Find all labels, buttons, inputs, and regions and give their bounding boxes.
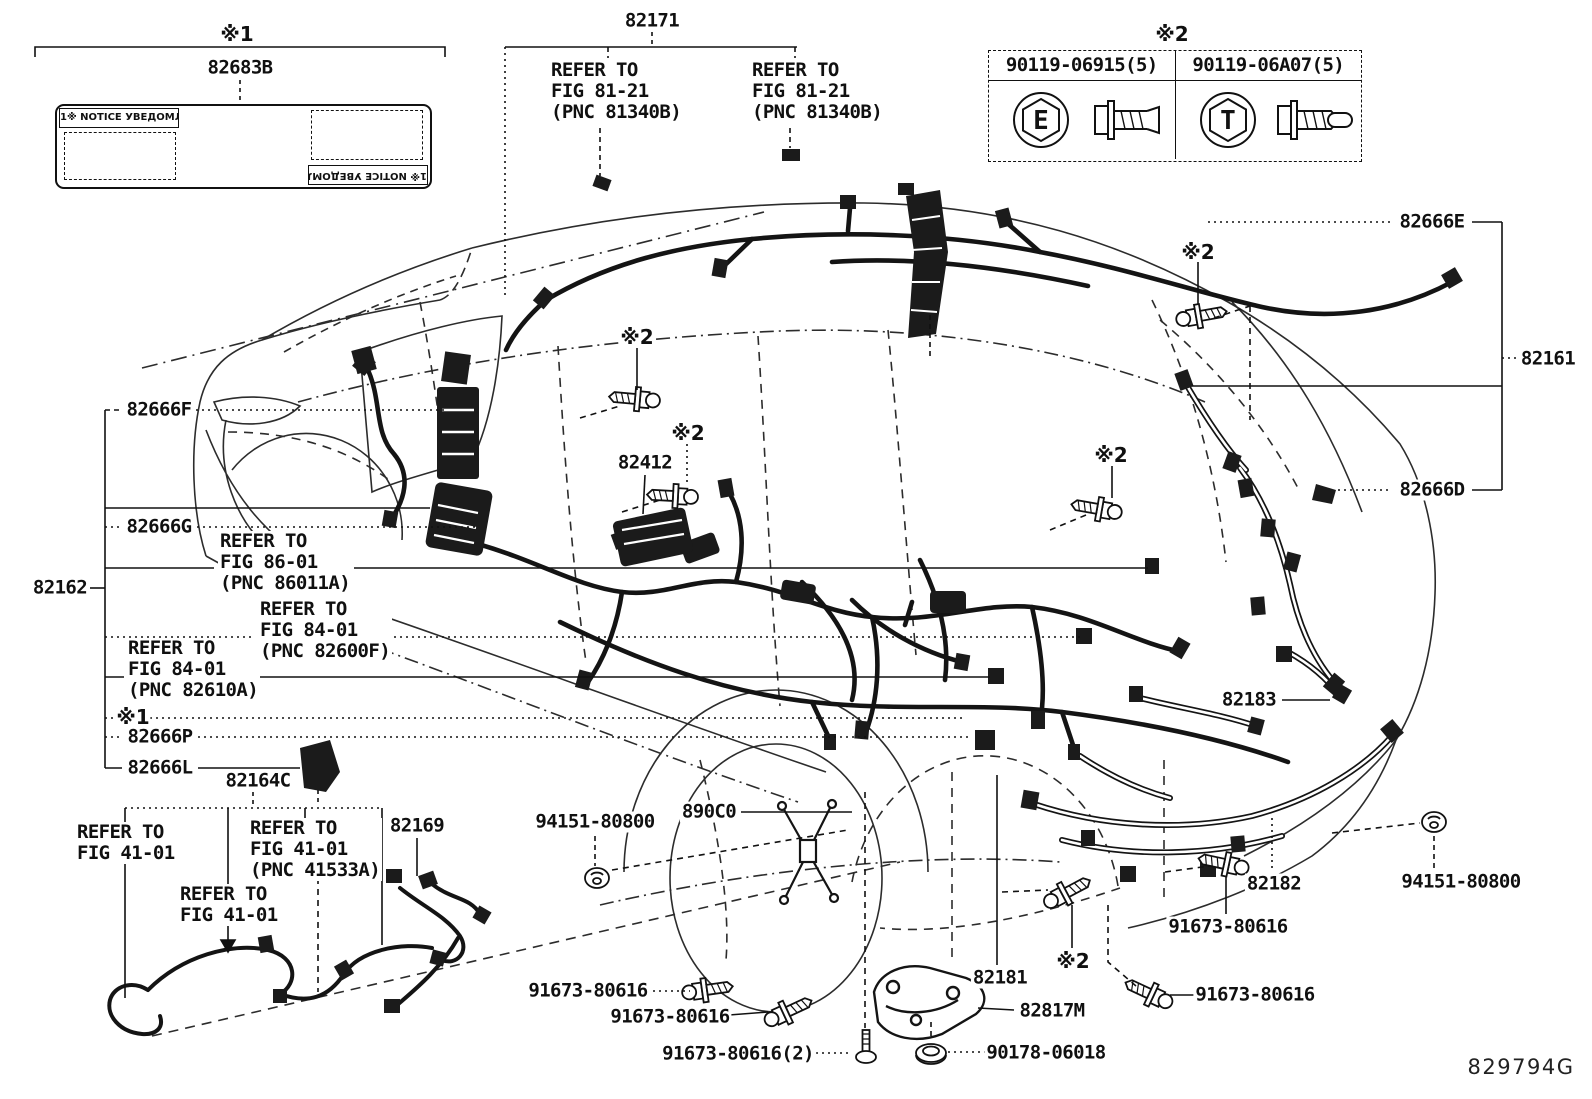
door-harness-block [425, 481, 494, 556]
bolt-icon [646, 483, 698, 510]
label-82683b: 82683B [205, 58, 274, 79]
label-82161: 82161 [1519, 349, 1577, 370]
ref-fig41-01-b: REFER TO FIG 41-01 [178, 884, 280, 926]
label-82666p: 82666P [125, 727, 194, 748]
label-94151-80800-left: 94151-80800 [533, 812, 656, 833]
notice-label-plate: 1※ NOTICE УВЕДОМЛЕНИЕ 1※ NOTICE УВЕДОМЛЕ… [55, 104, 432, 189]
fastener-part-number-1: 90119-06915(5) [989, 51, 1176, 80]
mark-x2-bumper: ※2 [1055, 951, 1090, 971]
protector-part-82666l [300, 740, 340, 792]
dash-harness [368, 370, 405, 518]
bolt-face-letter: T [1220, 106, 1236, 136]
label-82666e: 82666E [1397, 212, 1466, 233]
label-82666l: 82666L [125, 758, 194, 779]
bolt-face-letter: E [1033, 106, 1049, 136]
label-82817m: 82817M [1017, 1001, 1086, 1022]
label-82666f: 82666F [124, 400, 193, 421]
notice-header-mirrored: 1※ NOTICE УВЕДОМЛЕНИЕ [308, 165, 428, 185]
label-82183: 82183 [1220, 690, 1278, 711]
mark-x2-table: ※2 [1154, 24, 1189, 44]
fastener-part-number-2: 90119-06A07(5) [1176, 51, 1362, 80]
bracket-part-82817m [874, 966, 984, 1039]
screw-icon [856, 1030, 876, 1063]
notice-text-area [311, 110, 423, 160]
label-82666g: 82666G [124, 517, 193, 538]
label-82162: 82162 [31, 578, 89, 599]
bolt-icon [1069, 492, 1123, 524]
ref-fig81-21-a: REFER TO FIG 81-21 (PNC 81340B) [549, 60, 683, 123]
junction-block-82412 [612, 507, 694, 567]
bolt-icon [1174, 299, 1228, 331]
mark-x2-roof: ※2 [1180, 242, 1215, 262]
bolt-icon [1120, 972, 1176, 1015]
fuse-box-part [437, 351, 479, 479]
label-94151-80800-right: 94151-80800 [1399, 872, 1522, 893]
ref-fig41-01-a: REFER TO FIG 41-01 [75, 822, 177, 864]
fastener-table: 90119-06915(5) 90119-06A07(5) E T [988, 50, 1362, 162]
mark-x1-top: ※1 [219, 24, 254, 44]
label-82181: 82181 [971, 968, 1029, 989]
label-90178-06018: 90178-06018 [984, 1043, 1107, 1064]
label-91673-80616-b: 91673-80616 [608, 1007, 731, 1028]
label-82171: 82171 [623, 11, 681, 32]
notice-header: 1※ NOTICE УВЕДОМЛЕНИЕ [59, 108, 179, 128]
ref-fig81-21-b: REFER TO FIG 81-21 (PNC 81340B) [750, 60, 884, 123]
grommet-icon [585, 868, 609, 888]
label-82182: 82182 [1245, 874, 1303, 895]
mirror-connector [351, 346, 377, 374]
fastener-cell-1: E [989, 81, 1176, 159]
ref-fig86-01: REFER TO FIG 86-01 (PNC 86011A) [218, 531, 352, 594]
label-82666d: 82666D [1397, 480, 1466, 501]
mark-x1-left: ※1 [115, 707, 150, 727]
label-91673-80616-c: 91673-80616(2) [660, 1044, 816, 1065]
ref-fig41-01-pnc41533a: REFER TO FIG 41-01 (PNC 41533A) [248, 818, 382, 881]
roof-harness [546, 234, 1452, 314]
label-82164c: 82164C [223, 771, 292, 792]
mark-x2-floor: ※2 [670, 423, 705, 443]
ref-fig84-01-82610a: REFER TO FIG 84-01 (PNC 82610A) [126, 638, 260, 701]
clip-part-82666d [1312, 484, 1336, 504]
bolt-icon [1039, 870, 1095, 915]
label-91673-80616-e: 91673-80616 [1193, 985, 1316, 1006]
parts-diagram-page: 1※ NOTICE УВЕДОМЛЕНИЕ 1※ NOTICE УВЕДОМЛЕ… [0, 0, 1592, 1099]
label-890c0: 890C0 [680, 802, 738, 823]
bolt-icon [608, 385, 661, 413]
notice-text-area [64, 132, 176, 180]
grommet-icon [1422, 812, 1446, 832]
mark-x2-cowl: ※2 [619, 327, 654, 347]
bolt-icon [681, 974, 735, 1005]
figure-code: 829794G [1466, 1056, 1577, 1078]
label-91673-80616-a: 91673-80616 [526, 981, 649, 1002]
nut-icon [916, 1044, 946, 1064]
pillar-reinforcement-part [906, 190, 948, 338]
ref-fig84-01-82600f: REFER TO FIG 84-01 (PNC 82600F) [258, 599, 392, 662]
fastener-cell-2: T [1176, 81, 1362, 159]
bolt-drawing-e: E [989, 81, 1175, 159]
label-82412: 82412 [616, 453, 674, 474]
bottom-left-harness [148, 946, 432, 999]
mark-x2-rear: ※2 [1093, 445, 1128, 465]
label-82169: 82169 [388, 816, 446, 837]
label-91673-80616-d: 91673-80616 [1166, 917, 1289, 938]
bolt-drawing-t: T [1176, 81, 1362, 159]
